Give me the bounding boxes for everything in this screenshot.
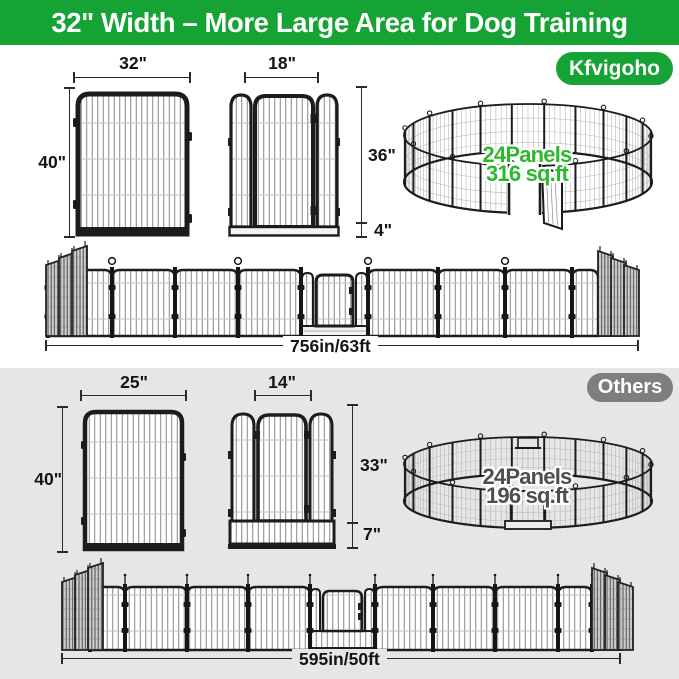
others-badge: Others (587, 373, 673, 402)
header-banner: 32" Width – More Large Area for Dog Trai… (0, 0, 679, 45)
others-panel-width-label: 25" (104, 372, 164, 393)
product-comparison-infographic: 32" Width – More Large Area for Dog Trai… (0, 0, 679, 679)
brand-fence-row-illustration (40, 248, 645, 343)
others-gate-bottom-label: 7" (363, 524, 381, 545)
others-row-length-label: 595in/50ft (292, 649, 387, 670)
brand-row-length-label: 756in/63ft (283, 336, 378, 357)
brand-panel-width-label: 32" (103, 53, 163, 74)
brand-gate-height-dimension (361, 87, 362, 223)
others-gate-bottom-dimension (352, 523, 353, 548)
others-fence-row-illustration (55, 560, 625, 655)
brand-panel-height-dimension (69, 88, 70, 237)
brand-panel-height-label: 40" (26, 152, 66, 173)
brand-gate-height-label: 36" (368, 145, 396, 166)
others-panel-width-dimension (81, 395, 186, 396)
brand-gate-width-dimension (245, 77, 318, 78)
brand-panel-width-dimension (74, 77, 190, 78)
others-gate-width-label: 14" (252, 372, 312, 393)
brand-pen-label: 24Panels 316 sq.ft (439, 145, 615, 183)
others-panel-height-dimension (62, 407, 63, 552)
others-gate-width-dimension (255, 395, 311, 396)
brand-gate-bottom-label: 4" (374, 220, 392, 241)
brand-gate-bottom-dimension (361, 223, 362, 237)
brand-panel-front-diagram (73, 88, 192, 237)
others-pen-area: 196 sq.ft (439, 486, 615, 505)
others-panel-height-label: 40" (22, 469, 62, 490)
others-panel-front-diagram (81, 407, 186, 552)
header-title: 32" Width – More Large Area for Dog Trai… (51, 7, 627, 39)
brand-gate-width-label: 18" (252, 53, 312, 74)
others-gate-panel-diagram (228, 405, 336, 550)
brand-pen-area: 316 sq.ft (439, 164, 615, 183)
others-gate-height-label: 33" (360, 455, 388, 476)
others-gate-height-dimension (352, 405, 353, 523)
brand-gate-panel-diagram (228, 88, 340, 237)
brand-badge: Kfvigoho (556, 52, 673, 85)
others-pen-label: 24Panels 196 sq.ft (439, 467, 615, 505)
